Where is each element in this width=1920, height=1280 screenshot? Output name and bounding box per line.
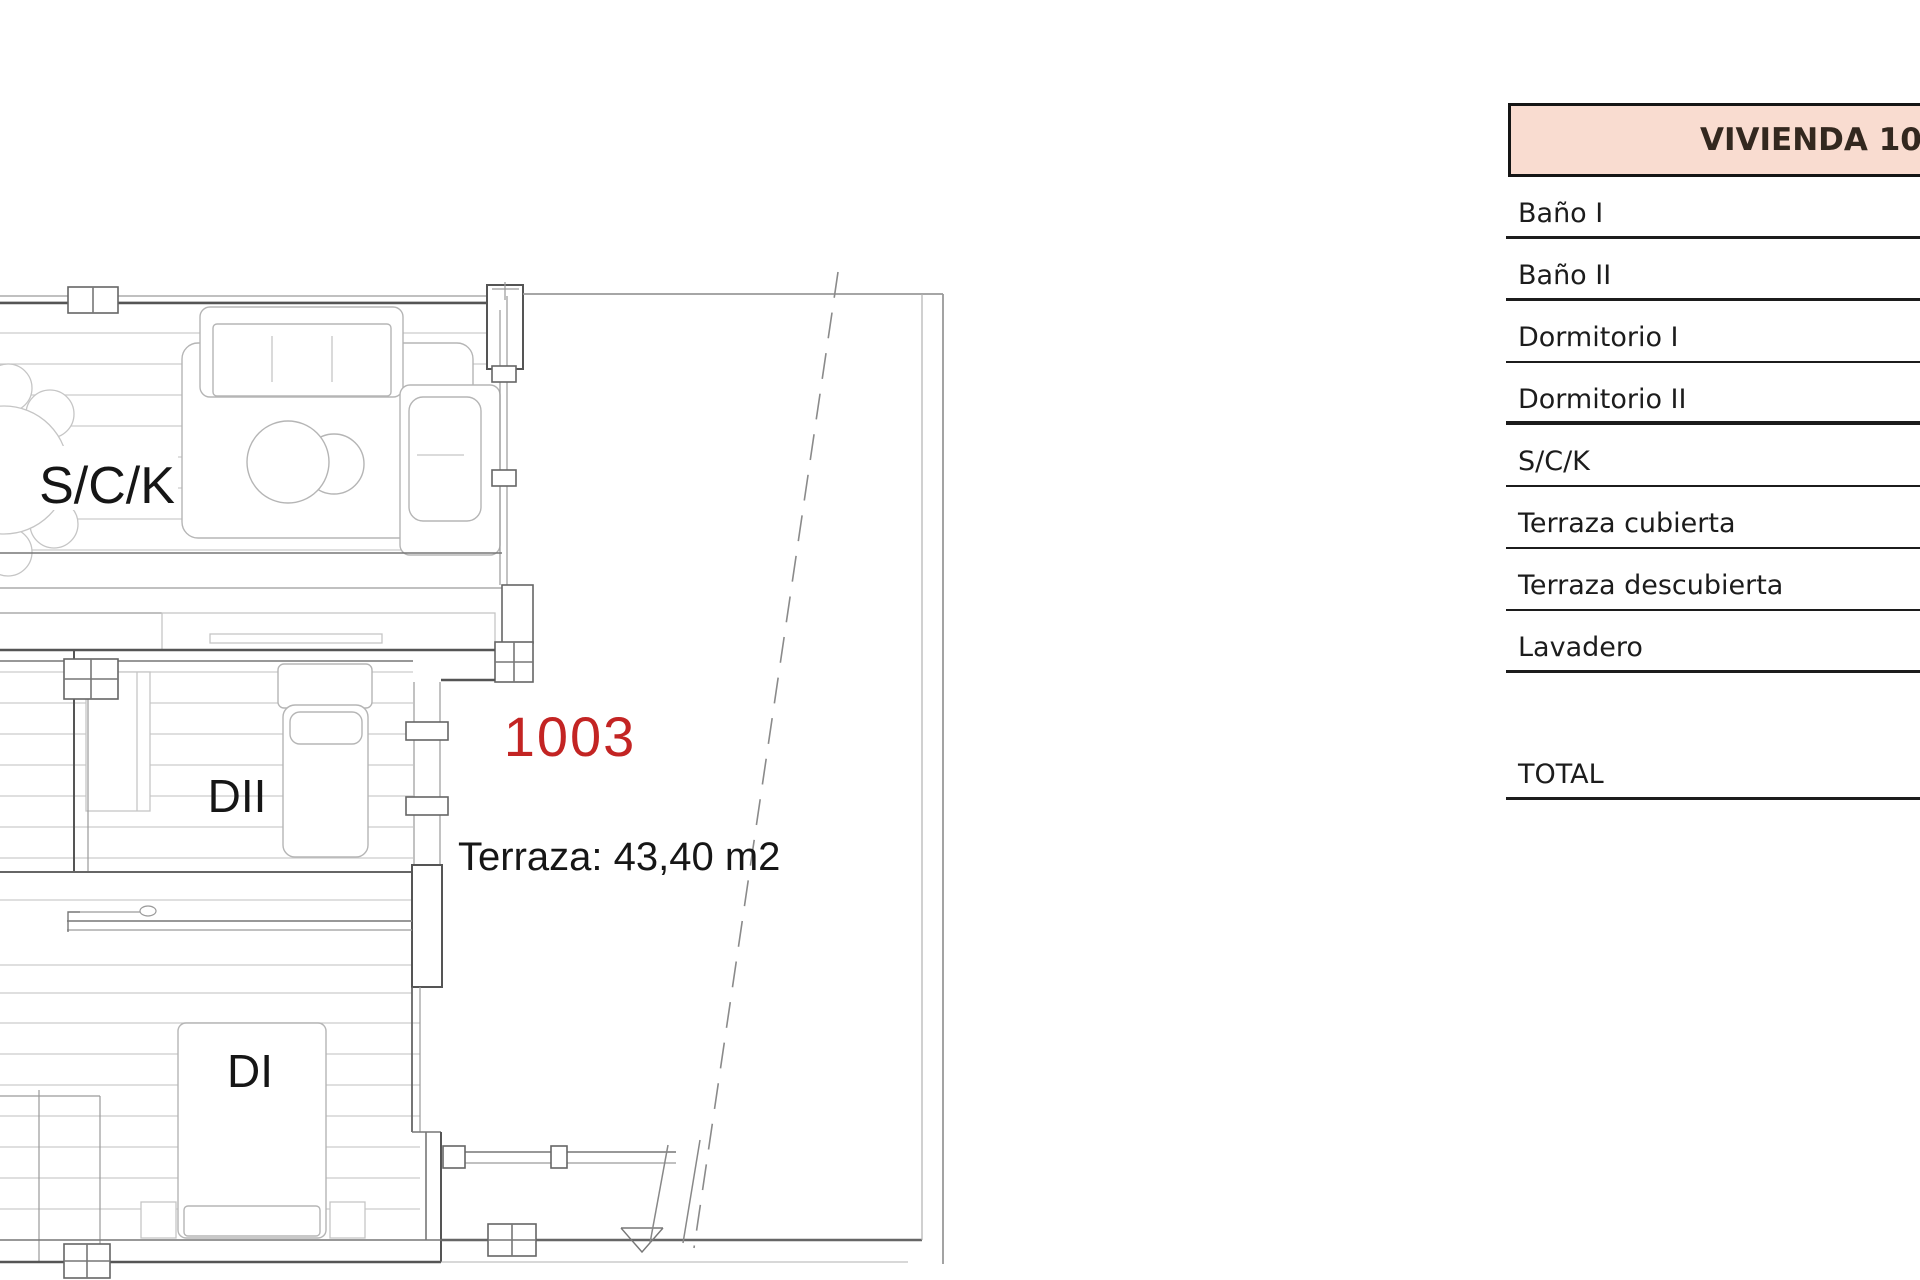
sliding-door (67, 906, 412, 932)
total-label: TOTAL (1506, 738, 1920, 790)
row-label: Dormitorio II (1506, 363, 1920, 415)
terrace-sliding-door (443, 1146, 676, 1168)
row-label: Lavadero (1506, 611, 1920, 663)
corner-column (487, 282, 523, 369)
plot-boundary-dashed-line (694, 272, 838, 1248)
row-label: Baño II (1506, 239, 1920, 291)
unit-number-label: 1003 (504, 705, 637, 768)
room-label-di: DI (227, 1045, 273, 1097)
row-label: Terraza cubierta (1506, 487, 1920, 539)
table-row-terraza-cubierta: Terraza cubierta (1506, 487, 1920, 549)
bed-dii (278, 664, 372, 857)
table-rows: Baño I Baño II Dormitorio I Dormitorio I… (1506, 177, 1920, 800)
sideboard (0, 613, 495, 650)
room-label-dii: DII (208, 770, 267, 822)
table-row-lavadero: Lavadero (1506, 611, 1920, 673)
window-marker-left (64, 659, 118, 699)
window-marker-bottom-left (64, 1244, 110, 1278)
window-marker-top (68, 287, 118, 313)
row-label: S/C/K (1506, 425, 1920, 477)
floor-plan-sheet: S/C/K DII DI 1003 Terraza: 43,40 m2 VIVI… (0, 0, 1920, 1280)
window-marker-bottom-right (488, 1224, 536, 1256)
room-label-sck: S/C/K (39, 457, 175, 515)
lounge-chair (400, 385, 500, 555)
table-header: VIVIENDA 10 (1508, 103, 1920, 177)
table-row-sck: S/C/K (1506, 425, 1920, 487)
table-row-terraza-descubierta: Terraza descubierta (1506, 549, 1920, 611)
table-row-dormitorio-ii: Dormitorio II (1506, 363, 1920, 425)
table-title: VIVIENDA 10 (1700, 106, 1920, 174)
row-label: Dormitorio I (1506, 301, 1920, 353)
terrace-area-label: Terraza: 43,40 m2 (458, 835, 780, 879)
row-label: Baño I (1506, 177, 1920, 229)
table-total-row: TOTAL (1506, 738, 1920, 800)
table-row-bano-i: Baño I (1506, 177, 1920, 239)
window-marker-mid (495, 642, 533, 682)
table-row-dormitorio-i: Dormitorio I (1506, 301, 1920, 363)
row-label: Terraza descubierta (1506, 549, 1920, 601)
table-row-bano-ii: Baño II (1506, 239, 1920, 301)
